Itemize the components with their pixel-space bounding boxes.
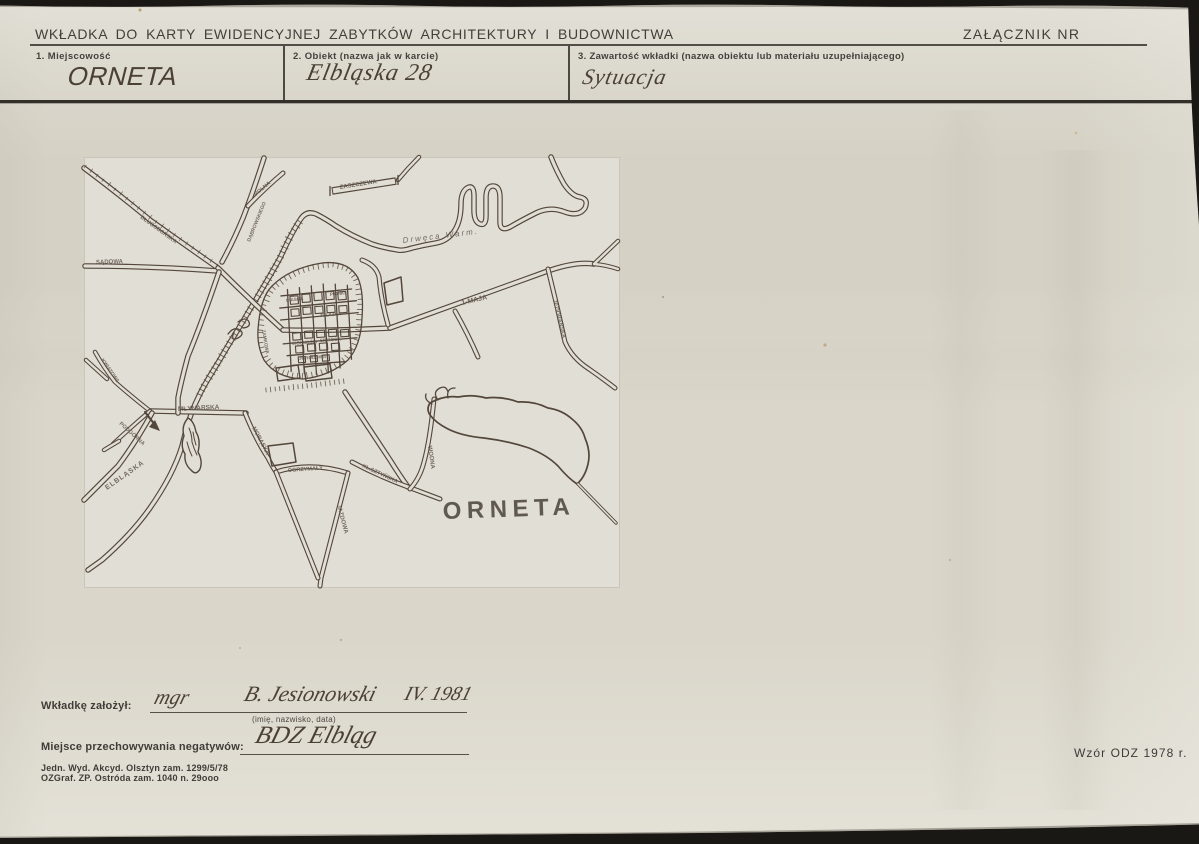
svg-text:ORNETA: ORNETA [442, 493, 575, 525]
svg-text:SĄDOWA: SĄDOWA [96, 259, 124, 266]
